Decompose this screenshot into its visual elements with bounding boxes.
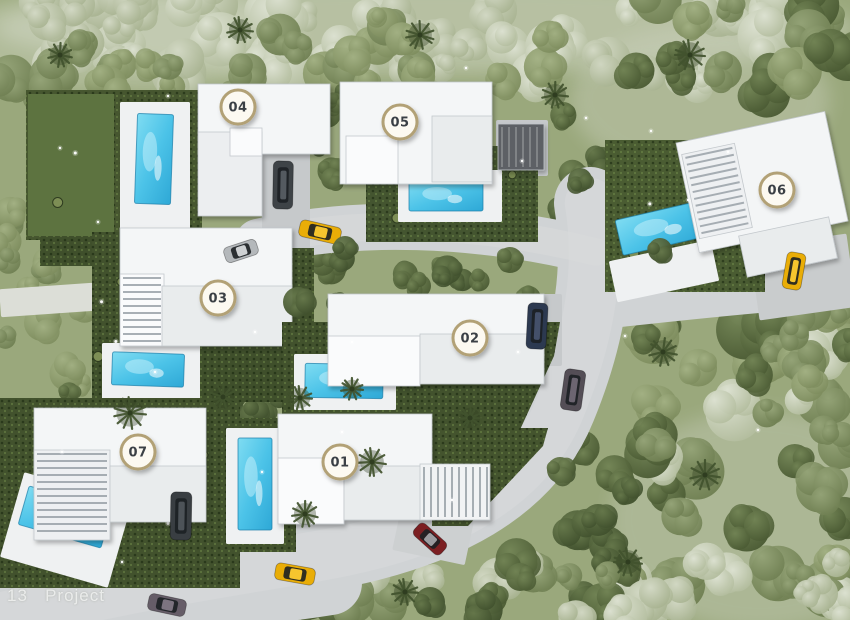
plot-badge-label: 06 [767,184,786,199]
topiary [508,171,516,179]
villa-05-pool [409,181,483,211]
plot-badge-label: 05 [390,116,409,131]
plot-badge-04[interactable]: 04 [221,90,255,124]
plot-badge-05[interactable]: 05 [383,105,417,139]
topiary [93,352,103,362]
plot-badge-label: 01 [330,456,349,471]
plot-badge-label: 04 [228,101,247,116]
car-dark-villa04 [273,161,294,209]
garden-light [100,300,103,303]
villa-01-pool [238,438,272,530]
topiary [53,198,63,208]
plot-badge-01[interactable]: 01 [323,445,357,479]
site-plan-render: 04050603020701 13 Project [0,0,850,620]
garden-light [114,340,117,343]
plot-badge-label: 03 [208,292,227,307]
watermark: 13 Project [7,586,105,606]
masterplan-canvas: 04050603020701 [0,0,850,620]
car-dark-villa07 [170,492,192,540]
garden-light [648,202,651,205]
plot-badge-06[interactable]: 06 [760,173,794,207]
plot-badge-07[interactable]: 07 [121,435,155,469]
villa-07 [0,398,240,588]
plot-badge-label: 02 [460,332,479,347]
garden-light [74,152,77,155]
car-navy-villa02 [526,303,548,350]
plot-badge-02[interactable]: 02 [453,321,487,355]
plot-badge-label: 07 [128,446,147,461]
villa-02-building [328,294,544,386]
villa-04-pool [134,113,173,204]
plot-badge-03[interactable]: 03 [201,281,235,315]
villa-03 [92,228,314,402]
villa-03-pool [111,352,184,387]
